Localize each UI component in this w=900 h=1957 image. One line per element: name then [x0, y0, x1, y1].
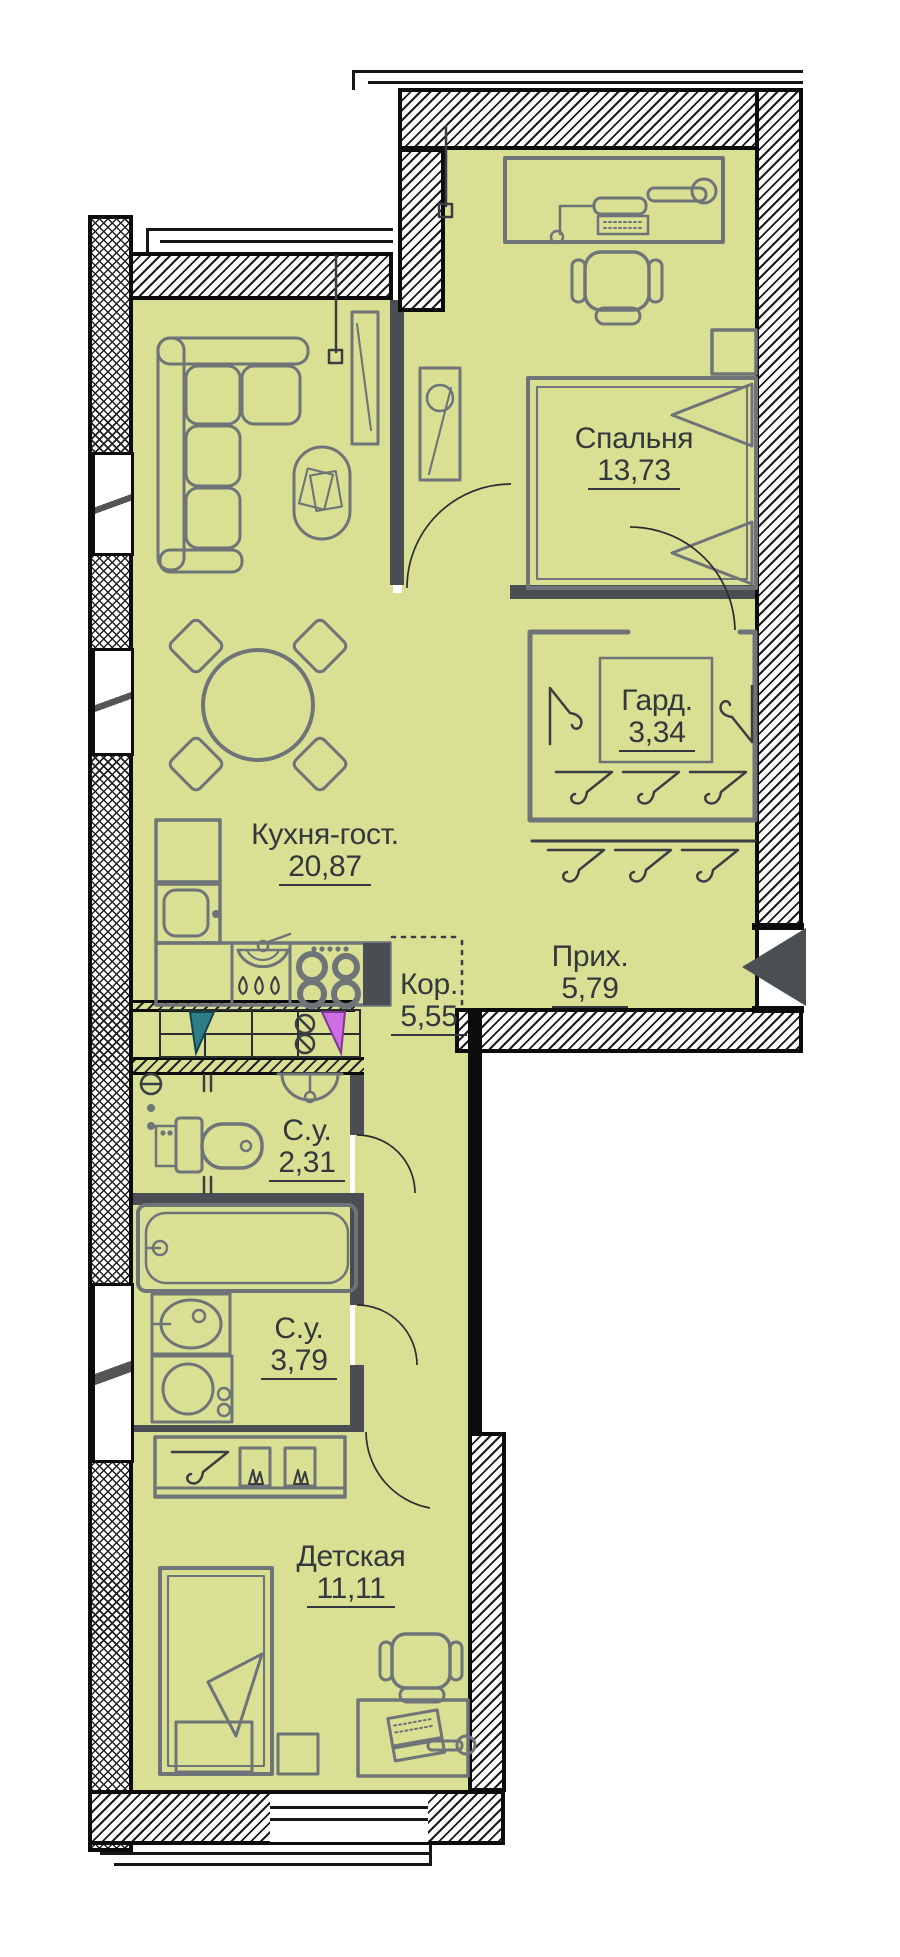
room-area: 5,79: [552, 972, 627, 1008]
room-label-wardrobe: Гард. 3,34: [587, 686, 727, 752]
child-nightstand: [278, 1734, 318, 1774]
room-label-children: Детская 11,11: [251, 1542, 451, 1608]
riser-hot-icon: [322, 1012, 345, 1053]
room-area: 11,11: [307, 1572, 394, 1608]
coat-rack: [532, 841, 755, 881]
coffee-table: [294, 447, 350, 539]
room-name: Спальня: [575, 424, 693, 454]
entry-arrow-icon: [742, 928, 806, 1006]
room-area: 5,55: [391, 1000, 466, 1036]
room-label-bathroom-main: С.у. 3,79: [239, 1314, 359, 1380]
tv-unit: [352, 312, 378, 444]
sofa: [158, 338, 308, 572]
office-chair-bedroom: [572, 252, 662, 324]
room-area: 20,87: [279, 850, 371, 886]
room-area: 3,79: [261, 1344, 336, 1380]
balcony-door-bedroom: [439, 126, 452, 217]
bedroom-cabinet: [420, 368, 460, 480]
pedestal-sink: [152, 1294, 230, 1354]
room-area: 2,31: [269, 1146, 344, 1182]
bathtub: [138, 1205, 356, 1291]
floor-plan: Спальня 13,73 Кухня-гост. 20,87 Гард. 3,…: [0, 0, 900, 1957]
room-name: Кухня-гост.: [251, 820, 399, 850]
desk-computer: [505, 158, 723, 243]
room-label-bedroom: Спальня 13,73: [544, 424, 724, 490]
room-label-hallway: Прих. 5,79: [520, 942, 660, 1008]
washing-machine: [152, 1356, 232, 1422]
child-chair: [380, 1634, 462, 1702]
room-label-corridor: Кор. 5,55: [369, 970, 489, 1036]
room-name: Гард.: [621, 686, 693, 716]
room-name: С.у.: [274, 1314, 323, 1344]
room-name: Кор.: [400, 970, 458, 1000]
stove: [299, 946, 358, 1006]
dining-set: [168, 618, 349, 793]
child-desk: [358, 1700, 475, 1776]
room-name: Детская: [296, 1542, 405, 1572]
room-area: 13,73: [588, 454, 680, 490]
room-name: Прих.: [552, 942, 629, 972]
room-label-kitchen-living: Кухня-гост. 20,87: [215, 820, 435, 886]
nightstand-bedroom: [712, 330, 756, 374]
riser-cold-icon: [190, 1012, 214, 1053]
entry-closet: [155, 1437, 345, 1497]
balcony-door-living: [329, 256, 342, 363]
wall-sink: [278, 1074, 342, 1102]
room-label-bathroom-guest: С.у. 2,31: [247, 1116, 367, 1182]
room-area: 3,34: [619, 716, 694, 752]
utility-shaft: [160, 1010, 360, 1057]
room-name: С.у.: [282, 1116, 331, 1146]
